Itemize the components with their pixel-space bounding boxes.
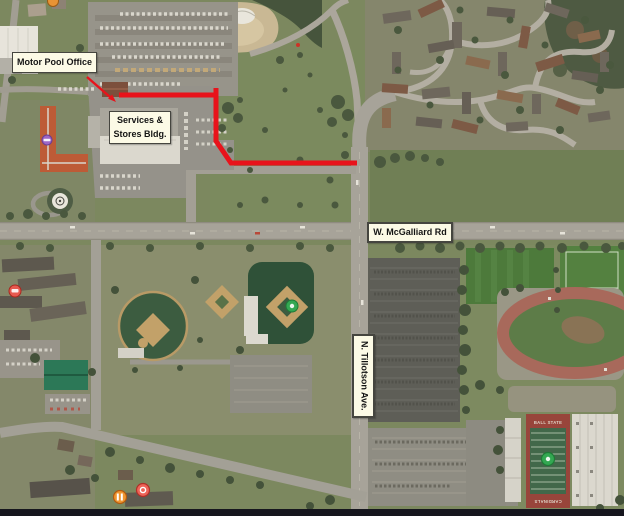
poi-green-stadium-icon [542, 453, 555, 466]
callout-motor-pool-office: Motor Pool Office [12, 52, 97, 73]
round-building [47, 188, 73, 214]
road-label-mcgalliard-text: W. McGalliard Rd [373, 227, 447, 239]
callout-services-line1: Services & [117, 114, 163, 127]
tillotson-road [351, 147, 368, 509]
poi-red-lodging-icon [9, 285, 21, 297]
softball-field [118, 292, 187, 360]
green-roof-building [44, 360, 88, 390]
road-label-tillotson-text: N. Tillotson Ave. [358, 341, 370, 411]
running-track [497, 288, 624, 380]
large-parking-lot [368, 258, 460, 422]
map-figure: BALL STATE CARDINALS [0, 0, 624, 516]
poi-small-dot-icon [296, 43, 300, 47]
bottom-border-strip [0, 509, 624, 516]
endzone-text-north: BALL STATE [534, 420, 562, 425]
poi-restaurant-icon [114, 491, 127, 504]
callout-services-stores: Services & Stores Bldg. [109, 111, 171, 144]
callout-services-line2: Stores Bldg. [113, 128, 166, 141]
callout-motor-pool-text: Motor Pool Office [17, 57, 92, 69]
poi-green-ballpark-icon [286, 300, 298, 312]
poi-red-food-icon [137, 484, 150, 497]
endzone-text-south: CARDINALS [534, 499, 561, 504]
aerial-photo: BALL STATE CARDINALS [0, 0, 624, 516]
baseball-stadium [244, 262, 314, 344]
road-label-tillotson: N. Tillotson Ave. [352, 334, 375, 418]
poi-purple-hotel-icon [42, 135, 52, 145]
poi-orange-top-icon [48, 0, 59, 7]
road-label-mcgalliard: W. McGalliard Rd [367, 222, 453, 243]
